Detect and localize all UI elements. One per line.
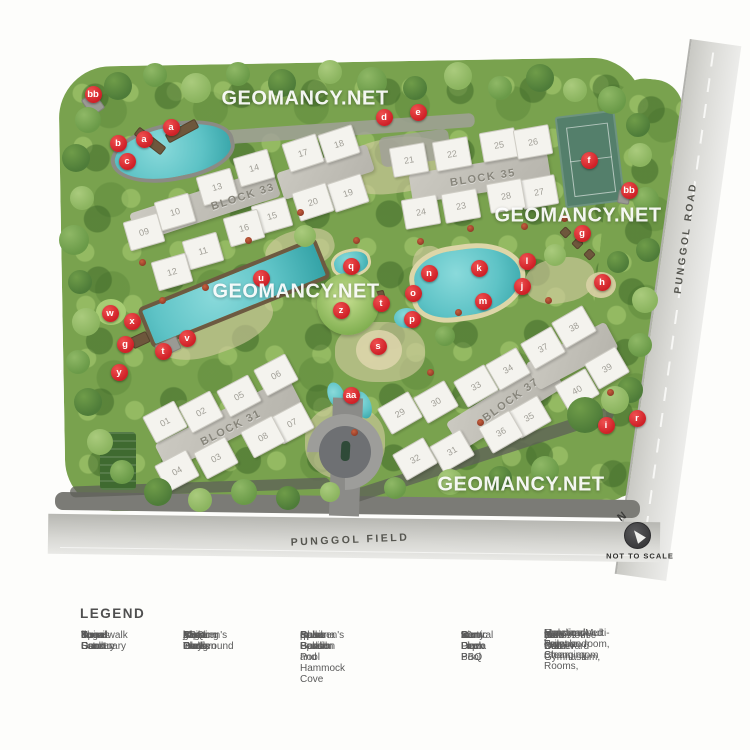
unit-21: 21: [389, 142, 430, 178]
marker-d: d: [376, 109, 393, 126]
north-compass-icon: [624, 522, 651, 549]
tree: [75, 107, 101, 133]
unit-23: 23: [441, 188, 482, 224]
tree: [62, 144, 90, 172]
marker-i: i: [598, 417, 615, 434]
tree: [276, 486, 300, 510]
marker-w: w: [102, 305, 119, 322]
flower-shrub: [467, 225, 474, 232]
marker-o: o: [405, 285, 422, 302]
tree: [181, 73, 211, 103]
tree: [636, 238, 660, 262]
marker-f: f: [581, 152, 598, 169]
flower-shrub: [159, 297, 166, 304]
tree: [68, 270, 92, 294]
flower-shrub: [353, 237, 360, 244]
tree: [318, 60, 342, 84]
flower-shrub: [477, 419, 484, 426]
marker-e: e: [410, 104, 427, 121]
flower-shrub: [245, 237, 252, 244]
marker-x: x: [124, 313, 141, 330]
tree: [59, 225, 89, 255]
watermark: GEOMANCY.NET: [494, 205, 661, 228]
marker-r: r: [629, 410, 646, 427]
marker-v: v: [179, 330, 196, 347]
compass-needle-icon: [630, 527, 646, 543]
legend-item-label: Spice Garden: [300, 630, 333, 652]
site-plan: 0102030405060708091011121314151617181920…: [0, 0, 750, 750]
tree: [544, 244, 566, 266]
tree: [72, 308, 100, 336]
tree: [384, 477, 406, 499]
tree: [598, 86, 626, 114]
marker-n: n: [421, 265, 438, 282]
tree: [231, 479, 257, 505]
tree: [601, 386, 629, 414]
flower-shrub: [455, 309, 462, 316]
legend-item-label: Tennis Court: [81, 630, 110, 652]
tree: [435, 326, 455, 346]
marker-j: j: [514, 278, 531, 295]
marker-b: b: [110, 135, 127, 152]
tree: [144, 478, 172, 506]
marker-a: a: [136, 131, 153, 148]
tree: [188, 488, 212, 512]
flower-shrub: [297, 209, 304, 216]
marker-z: z: [333, 302, 350, 319]
unit-22: 22: [432, 136, 473, 172]
marker-aa: aa: [343, 387, 360, 404]
tree: [143, 63, 167, 87]
marker-l: l: [519, 253, 536, 270]
watermark: GEOMANCY.NET: [221, 88, 388, 111]
not-to-scale-note: NOT TO SCALE: [606, 552, 674, 561]
tree: [607, 251, 629, 273]
tree: [626, 113, 650, 137]
flower-shrub: [139, 259, 146, 266]
unit-24: 24: [401, 194, 442, 230]
marker-bb: bb: [621, 182, 638, 199]
tree: [628, 333, 652, 357]
flower-shrub: [545, 297, 552, 304]
legend: LEGEND a.Spiral Sanctuaryb.Boardwalkc.Th…: [80, 606, 720, 736]
tree: [294, 225, 316, 247]
tree: [74, 388, 102, 416]
tree: [66, 350, 90, 374]
marker-g: g: [117, 336, 134, 353]
tree: [403, 76, 427, 100]
tree: [628, 143, 652, 167]
legend-item-label: Aqua Deck: [183, 630, 206, 652]
tree: [526, 64, 554, 92]
tree: [563, 78, 587, 102]
tree: [488, 76, 512, 100]
marker-bb: bb: [85, 86, 102, 103]
tree: [104, 72, 132, 100]
marker-a: a: [163, 119, 180, 136]
legend-title: LEGEND: [80, 606, 145, 621]
legend-item-label: Side Gate: [544, 630, 566, 652]
legend-item-label: Bon Fire BBQ: [461, 630, 482, 663]
marker-p: p: [404, 311, 421, 328]
marker-t: t: [155, 343, 172, 360]
marker-h: h: [594, 274, 611, 291]
marker-q: q: [343, 258, 360, 275]
marker-c: c: [119, 153, 136, 170]
flower-shrub: [607, 389, 614, 396]
flower-shrub: [427, 369, 434, 376]
watermark: GEOMANCY.NET: [437, 474, 604, 497]
marker-m: m: [475, 293, 492, 310]
tree: [444, 62, 472, 90]
tree: [110, 460, 134, 484]
tree: [632, 287, 658, 313]
watermark: GEOMANCY.NET: [212, 281, 379, 304]
marker-y: y: [111, 364, 128, 381]
tree: [87, 429, 113, 455]
marker-k: k: [471, 260, 488, 277]
flower-shrub: [202, 284, 209, 291]
tree: [320, 482, 340, 502]
flower-shrub: [417, 238, 424, 245]
tree: [226, 62, 250, 86]
tree: [70, 186, 94, 210]
marker-s: s: [370, 338, 387, 355]
car: [340, 441, 350, 461]
flower-shrub: [351, 429, 358, 436]
unit-26: 26: [513, 124, 554, 160]
